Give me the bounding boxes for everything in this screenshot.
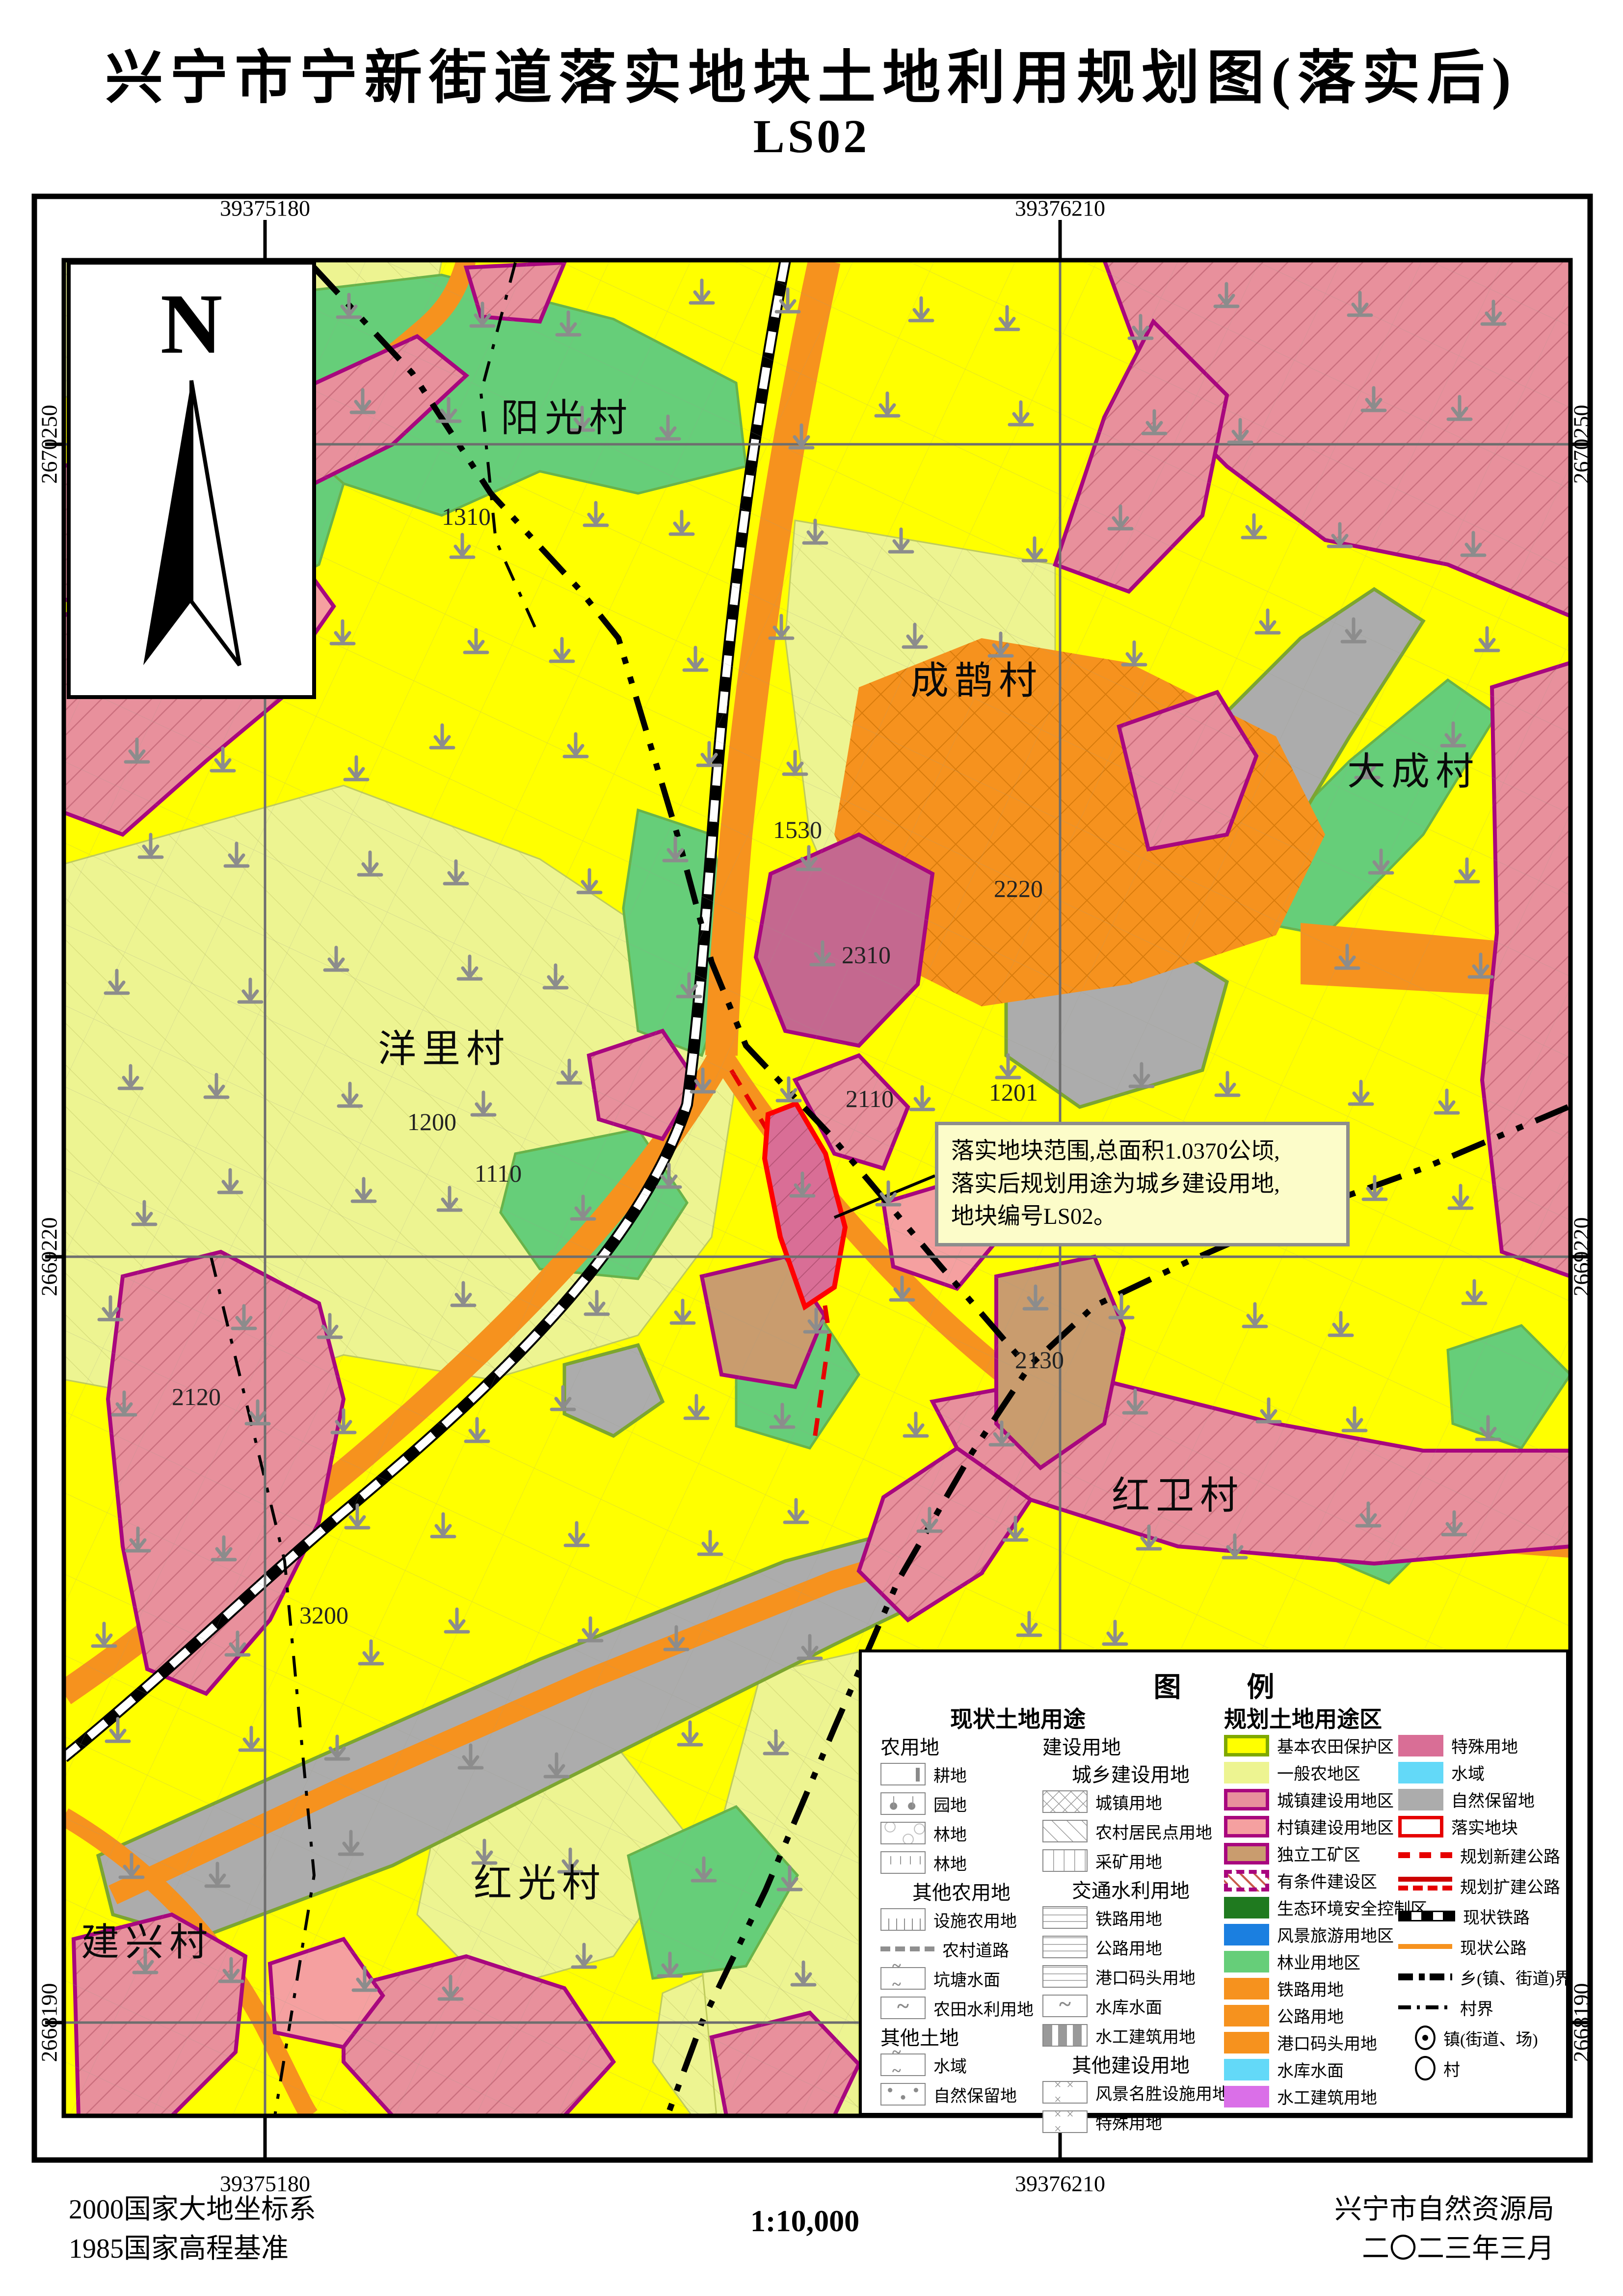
- legend-group: 交通水利用地: [1042, 1875, 1219, 1903]
- legend-group: 其他农用地: [880, 1877, 1042, 1905]
- coord-top-right: 39376210: [1015, 195, 1105, 221]
- swatch-cultivated: [880, 1763, 926, 1785]
- swatch-highway-use: [1224, 2005, 1269, 2026]
- swatch-irrigation: [880, 1997, 926, 2019]
- plot-code-1201: 1201: [989, 1078, 1038, 1107]
- swatch-railway-use: [1224, 1978, 1269, 1999]
- swatch-existing-railway: [1398, 1911, 1455, 1921]
- coord-right-top: 2670250: [1569, 405, 1595, 484]
- plot-code-3200: 3200: [299, 1601, 348, 1629]
- village-label-yangli: 洋里村: [378, 1018, 510, 1073]
- annotation-line-1: 落实地块范围,总面积1.0370公顷,: [951, 1135, 1333, 1168]
- swatch-scenic-facility: [1042, 2081, 1088, 2104]
- swatch-facility-agri: [880, 1908, 926, 1931]
- north-label: N: [160, 275, 222, 374]
- legend-group: 城乡建设用地: [1042, 1759, 1219, 1787]
- plot-code-2130: 2130: [1015, 1346, 1064, 1374]
- swatch-highway-land: [1042, 1936, 1088, 1958]
- swatch-mining-zone: [1224, 1843, 1269, 1864]
- plot-code-1310: 1310: [442, 502, 491, 531]
- swatch-eco-control: [1224, 1897, 1269, 1918]
- swatch-village-constr-zone: [1224, 1816, 1269, 1837]
- village-label-yangguang: 阳光村: [501, 387, 633, 442]
- swatch-general-agri: [1224, 1762, 1269, 1783]
- swatch-existing-road: [1398, 1944, 1452, 1949]
- annotation-line-2: 落实后规划用途为城乡建设用地,: [951, 1168, 1333, 1201]
- plot-code-2120: 2120: [172, 1382, 221, 1411]
- legend-title: 图 例: [862, 1665, 1566, 1705]
- swatch-planned-new-road: [1398, 1852, 1452, 1858]
- swatch-rural-residential: [1042, 1820, 1088, 1842]
- village-label-jianxing: 建兴村: [81, 1912, 213, 1967]
- swatch-port-use: [1224, 2032, 1269, 2053]
- swatch-rural-road: [880, 1946, 934, 1951]
- swatch-conditional-constr: [1224, 1870, 1269, 1891]
- swatch-forest-1: [880, 1822, 926, 1844]
- village-label-hongwei: 红卫村: [1112, 1465, 1244, 1520]
- swatch-nature-zone: [1398, 1789, 1443, 1810]
- plot-code-2110: 2110: [846, 1084, 894, 1113]
- swatch-forest-2: [880, 1851, 926, 1874]
- plot-code-1530: 1530: [773, 815, 822, 844]
- footer-scale: 1:10,000: [750, 2204, 859, 2239]
- plot-code-1200: 1200: [407, 1107, 456, 1136]
- swatch-reservoir-surface: [1224, 2059, 1269, 2080]
- swatch-nature-reserve-dots: [880, 2083, 926, 2106]
- swatch-forestry-zone: [1224, 1951, 1269, 1972]
- swatch-reservoir: [1042, 1995, 1088, 2017]
- legend-col-constr: 建设用地 城乡建设用地 城镇用地 农村居民点用地 采矿用地 交通水利用地 铁路用…: [1042, 1732, 1219, 2136]
- page-subtitle: LS02: [0, 109, 1623, 163]
- swatch-mining: [1042, 1849, 1088, 1872]
- plot-code-2220: 2220: [994, 874, 1043, 903]
- swatch-planned-expand-road: [1398, 1877, 1452, 1894]
- swatch-water-zone: [1398, 1762, 1443, 1783]
- swatch-basic-farmland: [1224, 1735, 1269, 1756]
- footer-date: 二〇二三年三月: [1362, 2226, 1554, 2266]
- coord-left-mid: 2669220: [36, 1217, 62, 1297]
- village-label-chengque: 成鹊村: [910, 650, 1043, 705]
- village-symbol-icon: [1415, 2056, 1436, 2080]
- coord-left-top: 2670250: [36, 405, 62, 484]
- legend-col-planned-1: 基本农田保护区 一般农地区 城镇建设用地区 村镇建设用地区 独立工矿区 有条件建…: [1224, 1732, 1398, 2110]
- legend-planned-header: 规划土地用途区: [1224, 1702, 1382, 1734]
- swatch-township-boundary: [1398, 1973, 1452, 1980]
- swatch-implemented-plot: [1398, 1816, 1443, 1837]
- swatch-pond: [880, 1967, 926, 1990]
- swatch-hydro-building: [1224, 2086, 1269, 2107]
- plot-code-2310: 2310: [842, 941, 891, 969]
- legend-current-header: 现状土地用途: [950, 1702, 1086, 1734]
- coord-right-mid: 2669220: [1569, 1217, 1595, 1297]
- page-title: 兴宁市宁新街道落实地块土地利用规划图(落实后): [0, 30, 1623, 114]
- coord-bottom-right: 39376210: [1015, 2171, 1105, 2197]
- village-label-hongguang: 红光村: [474, 1853, 606, 1908]
- village-label-dacheng: 大成村: [1347, 741, 1480, 796]
- legend-box: 图 例 现状土地用途 规划土地用途区 农用地 耕地 园地 林地 林地 其他农用地…: [859, 1649, 1569, 2116]
- swatch-port-land: [1042, 1965, 1088, 1988]
- swatch-garden: [880, 1792, 926, 1815]
- legend-col-planned-2: 特殊用地 水域 自然保留地 落实地块 规划新建公路 规划扩建公路 现状铁路 现状…: [1398, 1732, 1570, 2083]
- legend-group: 其他建设用地: [1042, 2050, 1219, 2078]
- footer-agency: 兴宁市自然资源局: [1334, 2187, 1554, 2227]
- swatch-special-zone: [1398, 1735, 1443, 1756]
- swatch-village-boundary: [1398, 2005, 1452, 2009]
- swatch-scenic-tourism: [1224, 1924, 1269, 1945]
- swatch-railway-land: [1042, 1906, 1088, 1929]
- swatch-water-area: [880, 2053, 926, 2076]
- swatch-special-use: [1042, 2110, 1088, 2133]
- swatch-town-constr-zone: [1224, 1789, 1269, 1810]
- coord-top-left: 39375180: [220, 195, 310, 221]
- swatch-hydro-constr: [1042, 2024, 1088, 2047]
- planning-map-page: 兴宁市宁新街道落实地块土地利用规划图(落实后) LS02 N 39375180 …: [0, 0, 1623, 2296]
- annotation-line-3: 地块编号LS02。: [951, 1200, 1333, 1233]
- coord-right-bottom: 2668190: [1569, 1983, 1595, 2062]
- plot-annotation-box: 落实地块范围,总面积1.0370公顷, 落实后规划用途为城乡建设用地, 地块编号…: [935, 1122, 1350, 1246]
- footer-datum-1: 2000国家大地坐标系: [69, 2187, 316, 2227]
- plot-code-1110: 1110: [475, 1159, 522, 1188]
- swatch-town-land: [1042, 1790, 1088, 1813]
- coord-left-bottom: 2668190: [36, 1983, 62, 2062]
- legend-group: 农用地: [880, 1732, 1042, 1759]
- legend-col-agri: 农用地 耕地 园地 林地 林地 其他农用地 设施农用地 农村道路 坑塘水面 农田…: [880, 1732, 1042, 2109]
- legend-group: 建设用地: [1042, 1732, 1219, 1759]
- town-symbol-icon: [1415, 2026, 1436, 2050]
- footer-datum-2: 1985国家高程基准: [69, 2226, 289, 2266]
